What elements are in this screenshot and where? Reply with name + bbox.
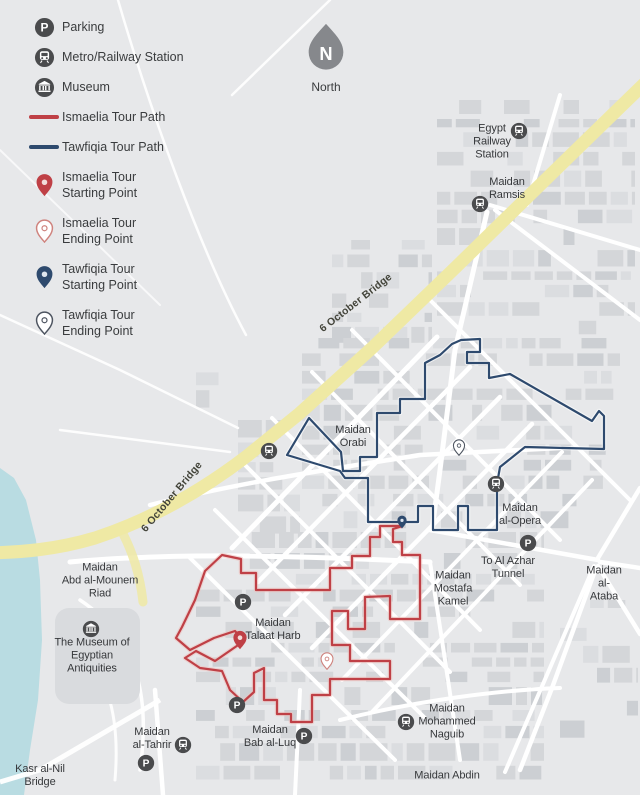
tour-map: P Parking Metro/Railway Station Museum I… (0, 0, 640, 795)
legend-label-ismaelia-start: Ismaelia Tour Starting Point (62, 169, 137, 202)
map-label-kasr-al-nil-bridge: Kasr al-Nil Bridge (15, 763, 65, 789)
svg-text:P: P (40, 20, 48, 34)
legend-label-tawfiqia-path: Tawfiqia Tour Path (62, 139, 164, 155)
legend-label-metro: Metro/Railway Station (62, 49, 184, 65)
legend-item-ismaelia-end: Ismaelia Tour Ending Point (26, 208, 184, 254)
svg-text:P: P (525, 539, 532, 550)
ismaelia-start-pin-icon (35, 173, 54, 197)
metro-icon (487, 475, 505, 493)
map-label-bridge-label-lower: 6 October Bridge (139, 459, 205, 535)
legend-label-ismaelia-end: Ismaelia Tour Ending Point (62, 215, 136, 248)
legend: P Parking Metro/Railway Station Museum I… (26, 12, 184, 346)
legend-label-tawfiqia-end: Tawfiqia Tour Ending Point (62, 307, 135, 340)
legend-item-parking: P Parking (26, 12, 184, 42)
ismaelia-start-pin (232, 630, 248, 650)
metro-icon (174, 736, 192, 754)
legend-label-parking: Parking (62, 19, 104, 35)
map-label-maidan-bab-al-luq: Maidan Bab al-Luq (244, 724, 296, 750)
map-label-maidan-al-ataba: Maidan al-Ataba (586, 565, 622, 604)
svg-text:N: N (319, 43, 332, 64)
tawfiqia-end-pin (453, 439, 466, 456)
tawfiqia-start-pin-icon (35, 265, 54, 289)
svg-text:P: P (143, 759, 150, 770)
map-label-maidan-mohammed-naguib: Maidan Mohammed Naguib (418, 703, 475, 742)
legend-label-museum: Museum (62, 79, 110, 95)
parking-icon: P (295, 727, 313, 745)
map-label-to-al-azhar-tunnel: To Al Azhar Tunnel (481, 555, 535, 581)
tawfiqia-end-pin-icon (35, 311, 54, 335)
svg-text:P: P (301, 732, 308, 743)
legend-item-metro: Metro/Railway Station (26, 42, 184, 72)
metro-icon (260, 442, 278, 460)
legend-label-tawfiqia-start: Tawfiqia Tour Starting Point (62, 261, 137, 294)
legend-item-tawfiqia-path: Tawfiqia Tour Path (26, 132, 184, 162)
map-label-maidan-orabi: Maidan Orabi (335, 424, 370, 450)
ismaelia-path-swatch (29, 115, 59, 119)
tawfiqia-start-pin (397, 515, 408, 529)
legend-item-tawfiqia-end: Tawfiqia Tour Ending Point (26, 300, 184, 346)
map-label-maidan-ramsis: Maidan Ramsis (489, 176, 525, 202)
ismaelia-end-pin (320, 652, 334, 670)
svg-text:P: P (234, 701, 241, 712)
museum-icon (82, 620, 100, 638)
legend-item-tawfiqia-start: Tawfiqia Tour Starting Point (26, 254, 184, 300)
museum-icon (34, 77, 55, 98)
parking-icon: P (137, 754, 155, 772)
map-label-maidan-mostafa-kamel: Maidan Mostafa Kamel (434, 570, 472, 609)
legend-item-ismaelia-start: Ismaelia Tour Starting Point (26, 162, 184, 208)
ismaelia-end-pin-icon (35, 219, 54, 243)
map-label-maidan-abdin: Maidan Abdin (414, 770, 479, 783)
parking-icon: P (234, 593, 252, 611)
map-label-museum-of-egyptian-antiquities: The Museum of Egyptian Antiquities (54, 637, 129, 676)
map-label-egypt-railway-station: Egypt Railway Station (473, 123, 511, 162)
map-overlay: P Parking Metro/Railway Station Museum I… (0, 0, 640, 795)
legend-label-ismaelia-path: Ismaelia Tour Path (62, 109, 165, 125)
north-marker: N North (300, 22, 352, 94)
metro-icon (510, 122, 528, 140)
tawfiqia-path-swatch (29, 145, 59, 149)
metro-icon (471, 195, 489, 213)
map-label-bridge-label-upper: 6 October Bridge (317, 271, 394, 335)
metro-icon (397, 713, 415, 731)
north-arrow-icon: N (303, 61, 349, 78)
parking-icon: P (519, 534, 537, 552)
map-label-maidan-al-opera: Maidan al-Opera (499, 502, 541, 528)
north-label: North (300, 80, 352, 94)
legend-item-museum: Museum (26, 72, 184, 102)
parking-icon: P (228, 696, 246, 714)
metro-icon (34, 47, 55, 68)
svg-text:P: P (240, 598, 247, 609)
map-label-maidan-al-tahrir: Maidan al-Tahrir (133, 726, 172, 752)
parking-icon: P (34, 17, 55, 38)
map-label-maidan-talaat-harb: Maidan Talaat Harb (245, 617, 300, 643)
map-label-maidan-abd-al-mounem-riad: Maidan Abd al-Mounem Riad (62, 562, 138, 601)
legend-item-ismaelia-path: Ismaelia Tour Path (26, 102, 184, 132)
